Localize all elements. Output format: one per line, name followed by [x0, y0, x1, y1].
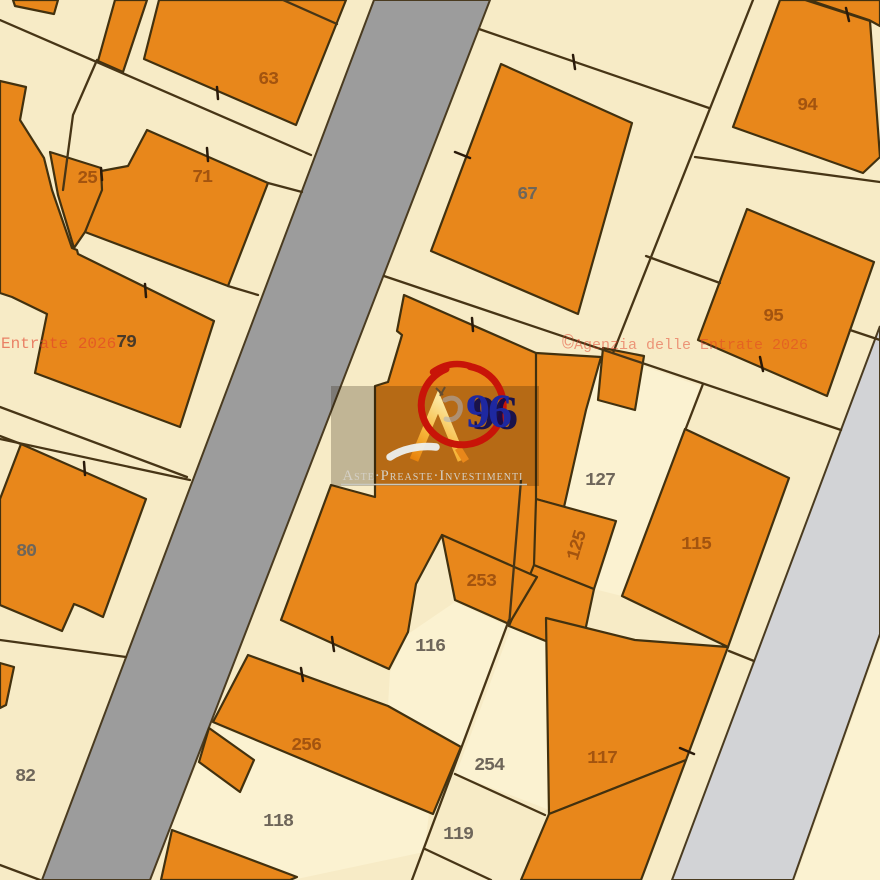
svg-text:25: 25	[77, 168, 98, 189]
svg-text:63: 63	[258, 69, 279, 90]
svg-text:67: 67	[517, 184, 537, 205]
svg-text:127: 127	[585, 470, 615, 491]
svg-text:118: 118	[263, 811, 294, 832]
svg-text:253: 253	[466, 571, 497, 592]
svg-text:119: 119	[443, 824, 473, 845]
svg-text:117: 117	[587, 748, 617, 769]
svg-text:254: 254	[474, 755, 505, 776]
svg-text:79: 79	[116, 332, 136, 353]
svg-text:Aste·Preaste·Investimenti: Aste·Preaste·Investimenti	[343, 468, 524, 484]
svg-text:94: 94	[797, 95, 818, 116]
svg-text:96: 96	[466, 385, 511, 438]
svg-text:115: 115	[681, 534, 712, 555]
svg-text:82: 82	[15, 766, 36, 787]
svg-text:116: 116	[415, 636, 446, 657]
svg-text:©Agenzia delle Entrate 2026: ©Agenzia delle Entrate 2026	[562, 333, 808, 356]
svg-text:80: 80	[16, 541, 37, 562]
svg-text:Entrate 2026: Entrate 2026	[1, 335, 116, 353]
svg-text:71: 71	[192, 167, 213, 188]
svg-text:256: 256	[291, 735, 322, 756]
svg-text:95: 95	[763, 306, 784, 327]
